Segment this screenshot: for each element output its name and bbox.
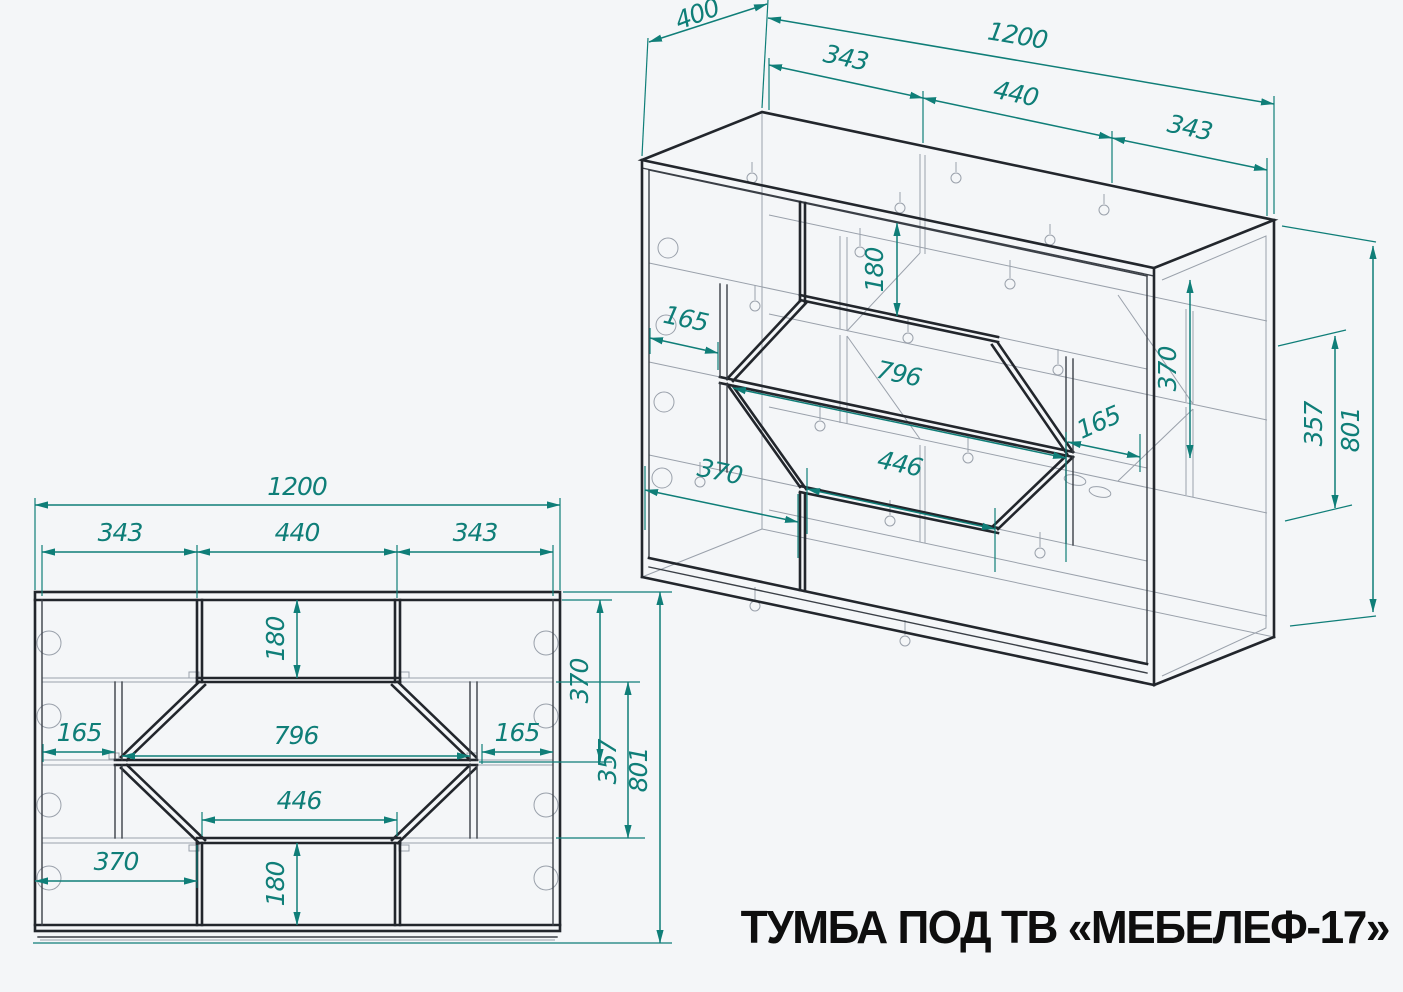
- iso-dim-depth: 400: [671, 0, 723, 36]
- front-dim-section-left: 343: [98, 518, 143, 547]
- iso-construction-lines: [642, 112, 1274, 676]
- iso-dim-shelf-bottom: 446: [875, 445, 925, 483]
- drawing-title: ТУМБА ПОД ТВ «МЕБЕЛЕФ-17»: [698, 900, 1389, 954]
- front-dim-niche-top-height: 180: [261, 617, 290, 662]
- iso-fastener-symbols: [695, 162, 1109, 646]
- iso-dim-section-right: 343: [1165, 109, 1215, 147]
- iso-dim-bottom-left-width: 370: [695, 453, 745, 491]
- front-dimensions: 1200 343 440 343 180 370 165: [33, 472, 672, 943]
- front-dim-shelf-middle: 796: [274, 721, 319, 750]
- front-dim-bottom-left-width: 370: [94, 847, 139, 876]
- iso-dim-height-total: 801: [1336, 408, 1365, 453]
- front-dim-recess-right: 165: [495, 718, 540, 747]
- front-dim-shelf-gap: 357: [593, 739, 622, 785]
- front-dim-section-right: 343: [453, 518, 498, 547]
- iso-dim-shelf-middle: 796: [874, 355, 924, 393]
- front-dim-niche-bottom-height: 180: [261, 862, 290, 907]
- front-dim-recess-left: 165: [57, 718, 102, 747]
- front-dim-height-upper-right: 370: [565, 659, 594, 704]
- front-view: 1200 343 440 343 180 370 165: [33, 472, 672, 943]
- front-dim-section-middle: 440: [275, 518, 320, 547]
- iso-view: 400 1200 343 440 343 180 165: [642, 0, 1376, 685]
- iso-carcass: [642, 112, 1274, 685]
- iso-dim-recess-right: 165: [1072, 400, 1125, 445]
- iso-dim-recess-left: 165: [661, 300, 711, 338]
- iso-dim-shelf-gap: 357: [1299, 401, 1328, 447]
- front-dim-height-total: 801: [624, 748, 653, 793]
- front-dim-shelf-bottom: 446: [277, 786, 322, 815]
- iso-dim-width: 1200: [986, 16, 1050, 54]
- iso-dim-niche-height: 180: [860, 248, 889, 293]
- iso-dim-section-middle: 440: [991, 75, 1041, 113]
- iso-dim-section-left: 343: [821, 39, 871, 77]
- iso-dim-height-upper: 370: [1153, 347, 1182, 392]
- technical-drawing: 400 1200 343 440 343 180 165: [0, 0, 1403, 992]
- front-dim-width: 1200: [267, 472, 327, 501]
